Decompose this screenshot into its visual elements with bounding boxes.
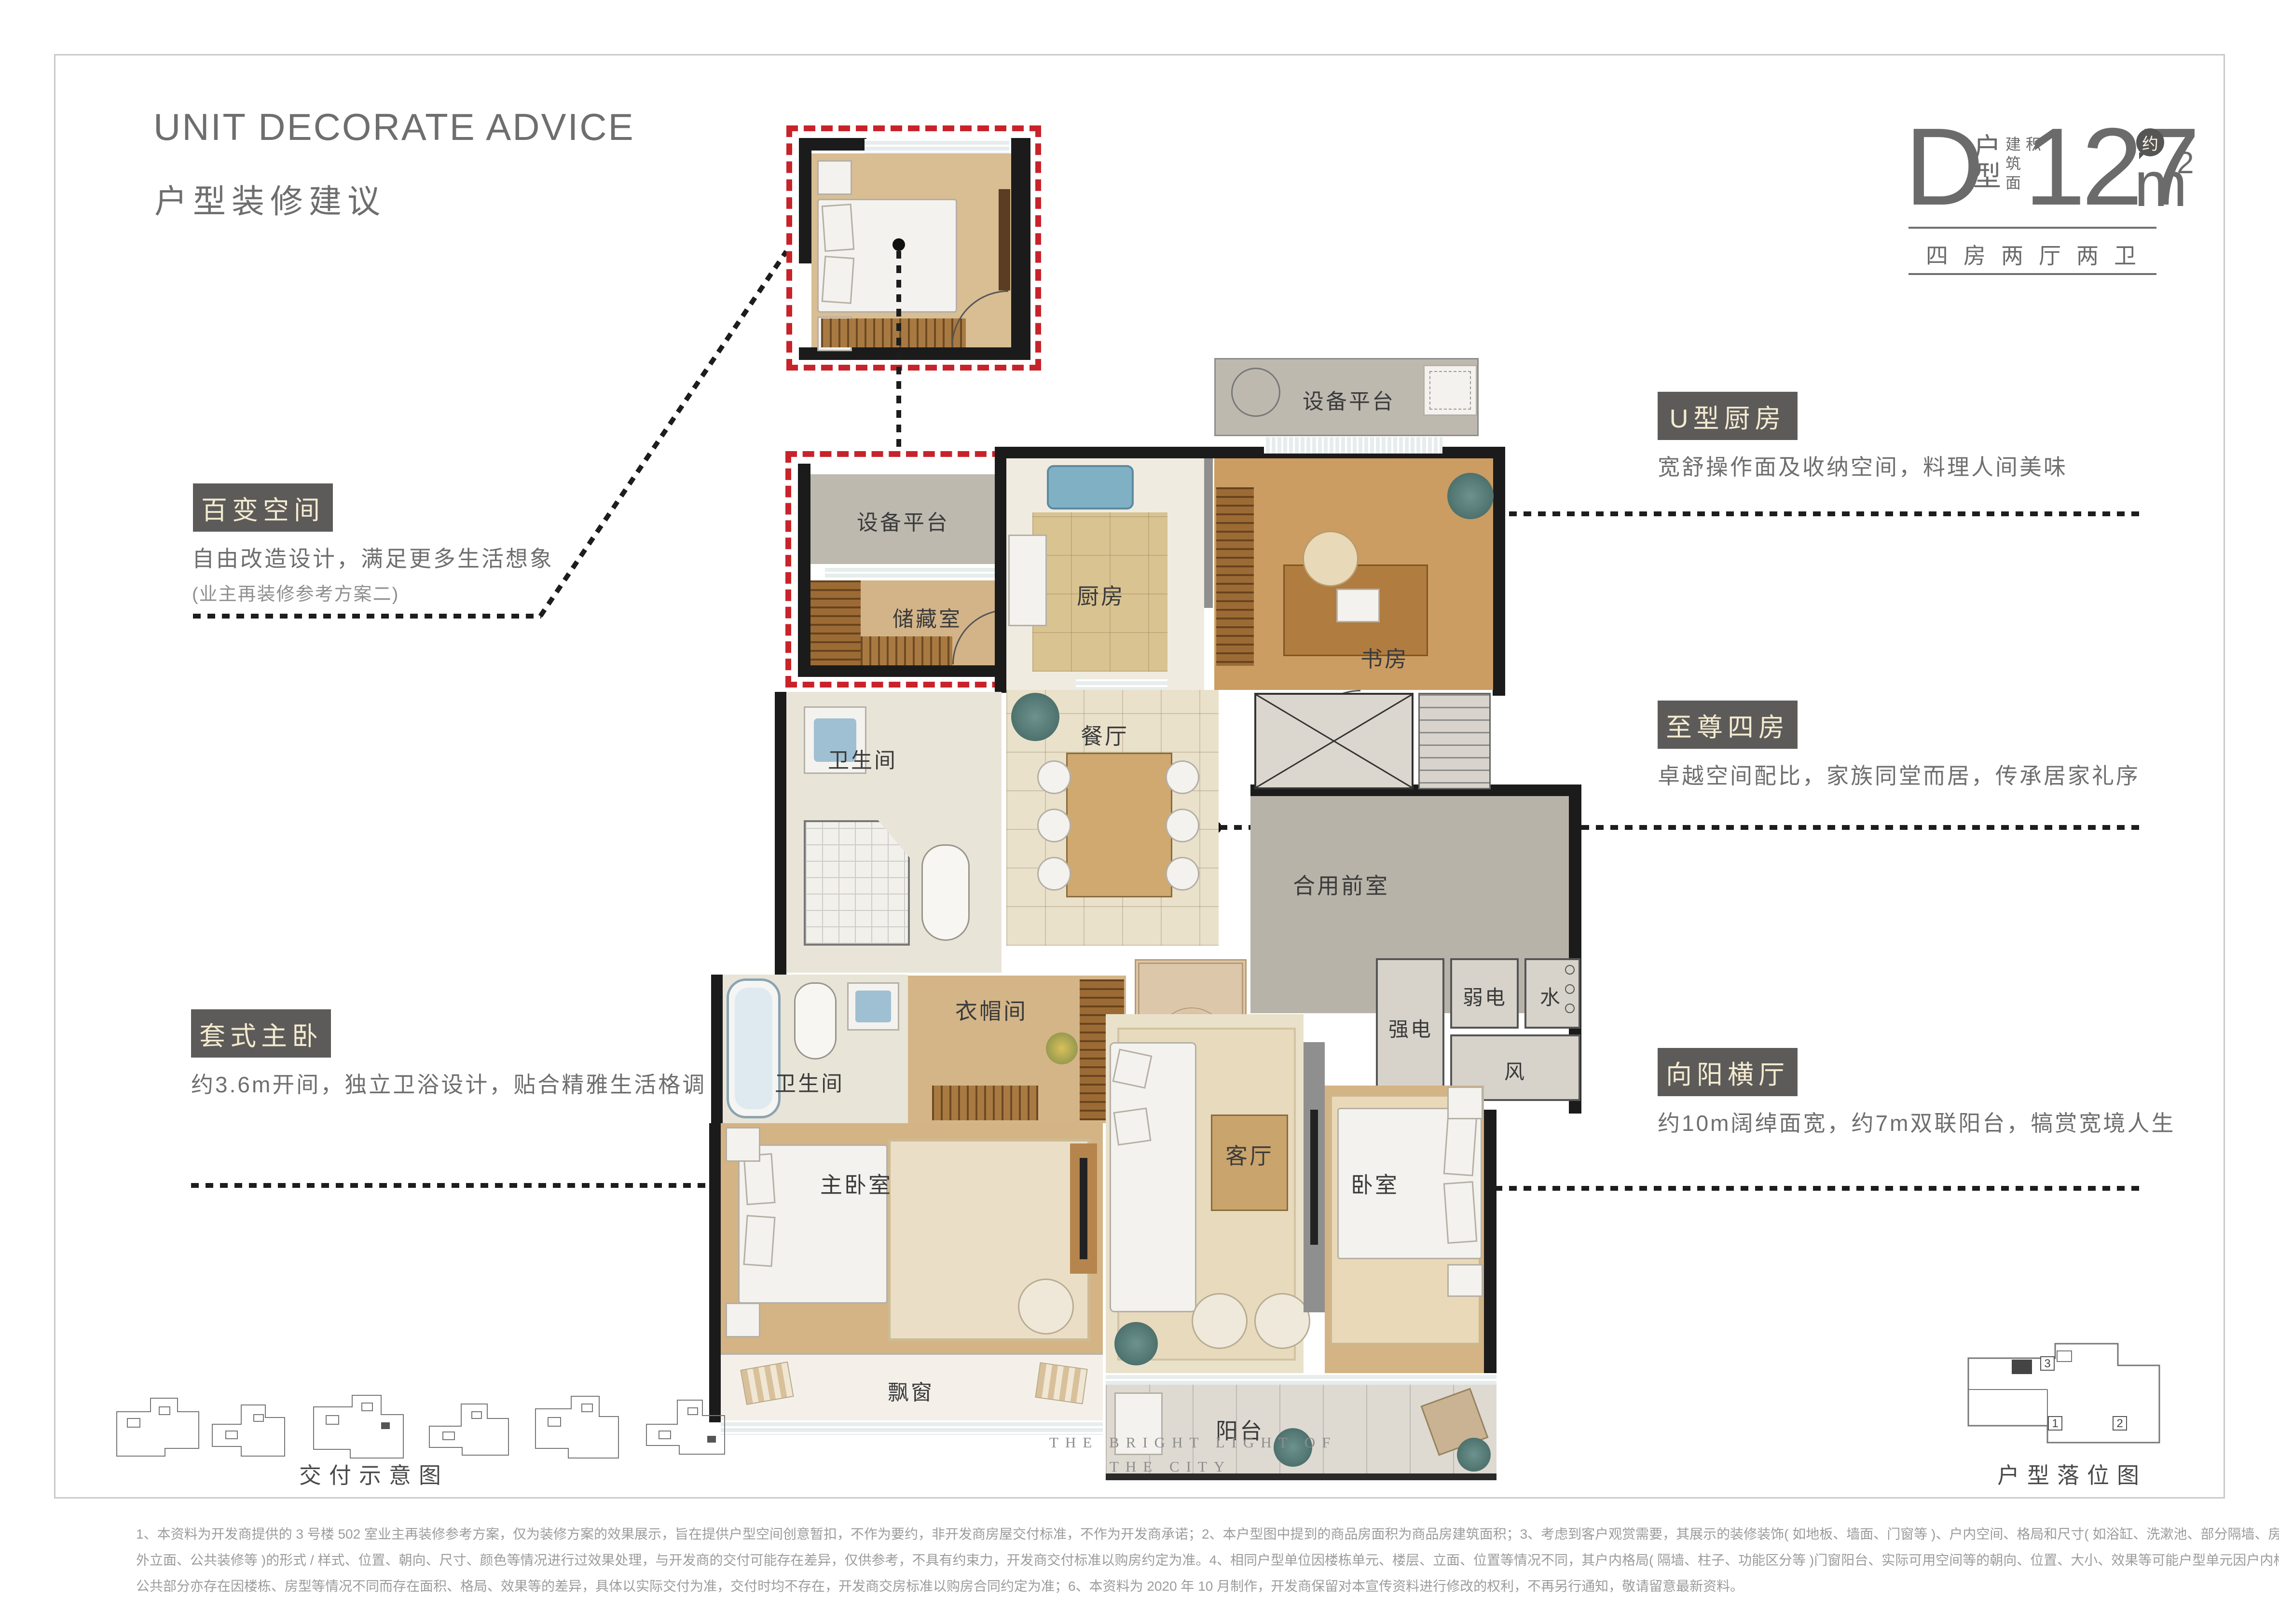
room-label-equip-top: 设备平台 [1303,384,1395,415]
disclaimer-line-1: 1、本资料为开发商提供的 3 号楼 502 室业主再装修参考方案，仅为装修方案的… [136,1524,2279,1543]
inset2-cabinet-bottom [861,636,952,665]
room-label-bath-lower: 卫生间 [775,1066,844,1097]
study-chair [1303,531,1359,587]
callout-flex-space-desc: 自由改造设计，满足更多生活想象 [192,541,554,573]
disclaimer-line-2: 外立面、公共装修等 )的形式 / 样式、位置、朝向、尺寸、颜色等情况进行过效果处… [136,1550,2279,1569]
connector-flex-space-line [193,614,541,619]
bedroom-nightstand-top [1447,1087,1483,1119]
room-label-bay: 飘窗 [888,1375,934,1406]
elevator-x-icon [1256,695,1412,787]
living-chair-2 [1254,1293,1310,1349]
brochure-page: UNIT DECORATE ADVICE 户型装修建议 D 户型 建筑面积 12… [0,0,2279,1624]
dining-chair-6 [1166,857,1199,891]
unit-type-label: 户型 [1968,133,2000,206]
living-sofa-pillow-2 [1113,1107,1151,1145]
bath-lower-tub-inner [735,988,772,1109]
page-title-en: UNIT DECORATE ADVICE [153,105,635,149]
room-label-master: 主卧室 [820,1168,892,1199]
living-chair-1 [1192,1293,1248,1349]
room-label-weak-elec: 弱电 [1463,981,1507,1011]
inset1-window [865,139,1009,153]
locator-unit-1: 1 [2052,1417,2058,1430]
locator-unit-2: 2 [2116,1417,2123,1430]
callout-sunny-hall-tag: 向阳横厅 [1658,1048,1798,1096]
water-pipe-3 [1565,1004,1575,1013]
washing-machine-inner [1429,371,1471,410]
bath-lower-toilet [794,982,837,1060]
inset-alt-bedroom [786,125,1041,371]
wall-bath-upper-left [775,692,786,976]
kitchen-sink [1047,465,1134,509]
cloak-flowers [1046,1032,1078,1064]
wall-master-left [709,1123,721,1422]
inset2-wall-bottom [798,664,1012,677]
master-nightstand-bottom [726,1303,760,1337]
dining-chair-1 [1037,760,1071,794]
round-table [1231,368,1280,417]
master-tv [1080,1158,1087,1259]
bedroom-pillow-1 [1443,1114,1478,1176]
bath-lower-basin [855,991,891,1022]
callout-flex-space-tag: 百变空间 [193,483,333,532]
bath-upper-toilet [921,844,970,941]
living-tv [1310,1110,1318,1245]
room-label-strong-elec: 强电 [1388,1013,1433,1043]
room-label-bedroom: 卧室 [1351,1168,1399,1199]
inset2-window [825,566,999,579]
water-pipe-2 [1565,984,1575,994]
room-label-study: 书房 [1360,642,1409,674]
room-label-bath-upper: 卫生间 [828,743,897,774]
bath-lower-tub [727,978,781,1118]
room-label-front: 合用前室 [1293,868,1389,900]
bay-pillow-2 [1035,1362,1087,1404]
callout-four-rooms-desc: 卓越空间配比，家族同堂而居，传承居家礼序 [1658,758,2140,790]
callout-flex-space-note: (业主再装修参考方案二) [192,579,399,606]
kitchen-slide-door [1076,679,1167,691]
locator-unit-3: 3 [2044,1357,2050,1370]
dining-table [1066,753,1172,897]
stairs [1418,693,1491,789]
connector-inset-dot-top [892,238,905,251]
living-plant [1114,1322,1158,1365]
inset1-wall-left [799,138,811,263]
room-label-storage: 储藏室 [892,602,962,633]
unit-locator-sketch: 3 1 2 [1954,1332,2181,1452]
wall-bedroom-right [1484,1110,1496,1383]
wall-kitchen-left [995,447,1006,693]
page-title-cn: 户型装修建议 [154,175,386,222]
dining-plant [1011,693,1059,741]
motto-line-2: THE CITY [1110,1458,1231,1475]
cloak-rack-bottom [932,1086,1038,1120]
delivery-sketch [111,1378,753,1465]
bay-window-glass [721,1420,1103,1435]
washing-machine [1423,365,1477,416]
inset1-wall-right [1011,138,1030,360]
room-label-cloak: 衣帽间 [955,994,1028,1026]
room-label-water: 水 [1540,981,1562,1011]
bath-upper-shower [804,820,910,946]
dining-chair-4 [1166,760,1199,794]
dining-chair-2 [1037,809,1071,842]
inset2-cabinet-left [810,580,861,665]
unit-area-sup: 2 [2177,145,2194,180]
living-sofa-pillow-1 [1112,1048,1152,1088]
dining-chair-3 [1037,857,1071,891]
delivery-sketch-caption: 交付示意图 [299,1458,449,1490]
bedroom-pillow-2 [1443,1181,1478,1244]
inset1-nightstand-top [817,160,852,195]
unit-divider-top [1908,227,2156,229]
room-label-dining: 餐厅 [1081,719,1129,751]
inset2-wall-left [798,464,810,676]
inset1-tv-console [999,189,1010,290]
window-study-top [1264,437,1442,454]
wall-kitchen-study [1203,458,1213,608]
bath-lower-sink [847,982,899,1031]
disclaimer-line-3: 公共部分亦存在因楼栋、房型等情况不同而存在面积、格局、效果等的差异，具体以实际交… [136,1576,1744,1595]
wall-bath-lower-left [711,975,723,1124]
unit-locator-caption: 户型落位图 [1997,1458,2147,1490]
callout-master-suite-tag: 套式主卧 [191,1009,331,1058]
room-label-equip-inset: 设备平台 [857,505,949,536]
water-pipe-1 [1565,965,1575,975]
callout-four-rooms-tag: 至尊四房 [1658,701,1798,749]
callout-sunny-hall-desc: 约10m阔绰面宽，约7m双联阳台，犒赏宽境人生 [1658,1106,2175,1138]
bedroom-nightstand-bottom [1447,1264,1483,1297]
balcony-slide-door [1106,1373,1496,1385]
inset1-pillow-1 [822,204,855,252]
elevator-shaft [1254,693,1414,789]
callout-u-kitchen-tag: U型厨房 [1658,392,1798,440]
room-label-wind: 风 [1504,1056,1526,1085]
dining-chair-5 [1166,809,1199,842]
inset1-wardrobe [821,318,966,347]
master-nightstand-top [726,1127,760,1162]
kitchen-stove [1008,535,1047,626]
callout-u-kitchen-desc: 宽舒操作面及收纳空间，料理人间美味 [1658,450,2068,482]
unit-divider-bottom [1908,273,2156,275]
motto-line-1: THE BRIGHT LIGHT OF [1049,1434,1337,1451]
study-laptop [1336,589,1380,622]
master-pillow-2 [743,1215,775,1267]
inset1-pillow-2 [822,256,855,304]
room-label-kitchen: 厨房 [1077,579,1125,611]
balcony-plant-2 [1457,1438,1491,1472]
study-plant [1447,473,1494,519]
master-chair [1018,1279,1074,1335]
unit-layout-desc: 四房两厅两卫 [1908,238,2169,270]
callout-master-suite-desc: 约3.6m开间，独立卫浴设计，贴合精雅生活格调 [191,1067,706,1099]
room-label-living: 客厅 [1225,1139,1274,1170]
wall-study-right [1493,447,1505,696]
study-bookshelf [1216,487,1254,666]
